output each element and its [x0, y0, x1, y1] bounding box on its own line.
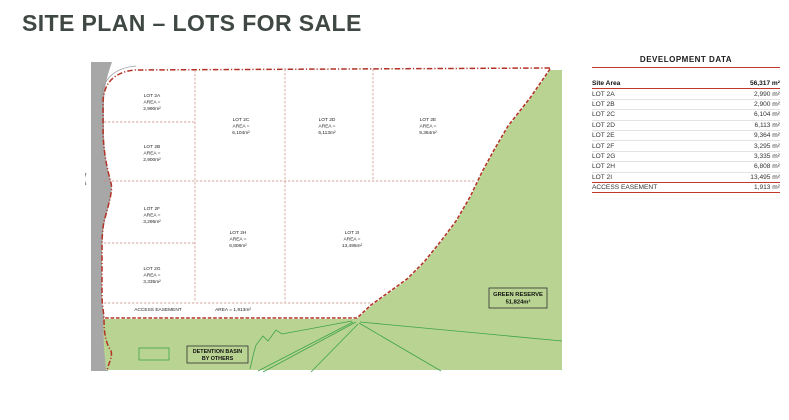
- svg-text:AREA =: AREA =: [319, 124, 336, 130]
- table-row-access-easement: ACCESS EASEMENT 1,913 m²: [592, 183, 780, 193]
- svg-text:AREA =: AREA =: [344, 237, 361, 243]
- svg-text:6,808m²: 6,808m²: [229, 243, 247, 249]
- svg-text:LOT 2F: LOT 2F: [144, 206, 160, 212]
- site-plan-drawing: LOT 2A AREA = 2,990m² LOT 2B AREA = 2,90…: [85, 56, 567, 378]
- table-row: LOT 2H 6,808 m²: [592, 162, 780, 172]
- svg-text:3,335m²: 3,335m²: [143, 279, 161, 285]
- lot-label-2c: LOT 2C AREA = 6,104m²: [232, 117, 250, 136]
- development-data-table: DEVELOPMENT DATA Site Area 56,317 m² LOT…: [592, 55, 780, 193]
- lot-label-2a: LOT 2A AREA = 2,990m²: [143, 93, 161, 112]
- lot-labels: LOT 2A AREA = 2,990m² LOT 2B AREA = 2,90…: [143, 93, 437, 285]
- table-row: LOT 2D 6,113 m²: [592, 121, 780, 131]
- svg-text:DETENTION BASIN: DETENTION BASIN: [193, 349, 243, 355]
- lot-label-2d: LOT 2D AREA = 6,113m²: [318, 117, 336, 136]
- svg-text:2,900m²: 2,900m²: [143, 157, 161, 163]
- svg-text:2,990m²: 2,990m²: [143, 106, 161, 112]
- svg-text:6,113m²: 6,113m²: [318, 130, 336, 136]
- svg-text:AREA =: AREA =: [144, 151, 161, 157]
- slide: { "page": { "title": "SITE PLAN – LOTS F…: [0, 0, 789, 420]
- table-row: LOT 2E 9,364 m²: [592, 131, 780, 141]
- page-title: SITE PLAN – LOTS FOR SALE: [22, 10, 362, 37]
- road-edge-tick: [85, 173, 86, 185]
- svg-text:51,824m²: 51,824m²: [506, 299, 531, 306]
- svg-text:LOT 2C: LOT 2C: [233, 117, 250, 123]
- svg-text:LOT 2E: LOT 2E: [420, 117, 436, 123]
- svg-text:LOT 2D: LOT 2D: [319, 117, 336, 123]
- svg-text:AREA =: AREA =: [144, 100, 161, 106]
- table-row: LOT 2I 13,495 m²: [592, 173, 780, 183]
- svg-text:AREA =: AREA =: [230, 237, 247, 243]
- lot-label-2f: LOT 2F AREA = 3,295m²: [143, 206, 161, 225]
- table-row: LOT 2C 6,104 m²: [592, 110, 780, 120]
- svg-text:3,295m²: 3,295m²: [143, 219, 161, 225]
- lot-label-2b: LOT 2B AREA = 2,900m²: [143, 144, 161, 163]
- lot-label-2h: LOT 2H AREA = 6,808m²: [229, 230, 247, 249]
- table-row: LOT 2G 3,335 m²: [592, 152, 780, 162]
- lot-label-2i: LOT 2I AREA = 13,495m²: [342, 230, 363, 249]
- access-easement-area: AREA = 1,913m²: [215, 307, 251, 313]
- svg-text:LOT 2A: LOT 2A: [144, 93, 161, 99]
- svg-text:LOT 2H: LOT 2H: [230, 230, 247, 236]
- access-easement-label: ACCESS EASEMENT: [134, 307, 182, 313]
- svg-text:AREA =: AREA =: [144, 273, 161, 279]
- svg-text:13,495m²: 13,495m²: [342, 243, 363, 249]
- table-row: LOT 2F 3,295 m²: [592, 141, 780, 151]
- svg-text:9,364m²: 9,364m²: [419, 130, 437, 136]
- table-row: LOT 2A 2,990 m²: [592, 89, 780, 99]
- table-row: LOT 2B 2,900 m²: [592, 100, 780, 110]
- lot-label-2g: LOT 2G AREA = 3,335m²: [143, 266, 161, 285]
- table-title: DEVELOPMENT DATA: [592, 55, 780, 64]
- svg-text:LOT 2G: LOT 2G: [144, 266, 161, 272]
- lot-label-2e: LOT 2E AREA = 9,364m²: [419, 117, 437, 136]
- svg-text:LOT 2B: LOT 2B: [144, 144, 160, 150]
- svg-text:6,104m²: 6,104m²: [232, 130, 250, 136]
- table-row-site-area: Site Area 56,317 m²: [592, 79, 780, 89]
- svg-text:AREA =: AREA =: [233, 124, 250, 130]
- svg-text:GREEN RESERVE: GREEN RESERVE: [493, 292, 543, 298]
- table-rows: Site Area 56,317 m² LOT 2A 2,990 m² LOT …: [592, 79, 780, 193]
- svg-text:LOT 2I: LOT 2I: [345, 230, 360, 236]
- svg-text:BY OTHERS: BY OTHERS: [202, 356, 234, 362]
- svg-text:AREA =: AREA =: [420, 124, 437, 130]
- svg-text:AREA =: AREA =: [144, 213, 161, 219]
- table-title-rule: [592, 67, 780, 68]
